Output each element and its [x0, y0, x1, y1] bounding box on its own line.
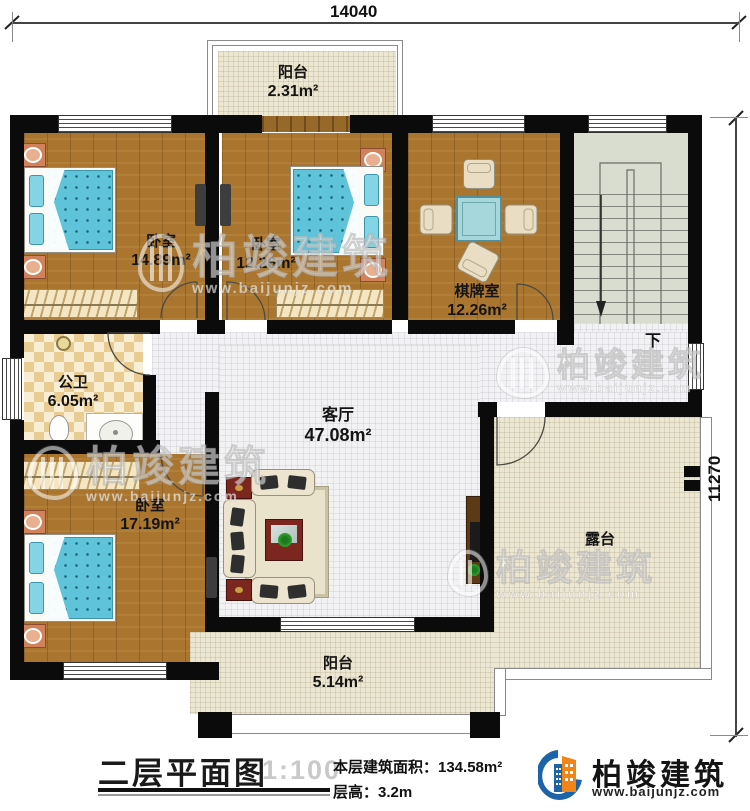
- cushion: [230, 554, 245, 573]
- living-sofa-top: [251, 469, 315, 496]
- bedroom3-tv: [206, 557, 217, 598]
- dimension-ext-left: [12, 12, 13, 42]
- dimension-right-line: [735, 118, 737, 737]
- living-side-table-bottom: [226, 579, 252, 601]
- stair-treads: [574, 183, 688, 324]
- bedroom2-nightstand-bottom: [360, 258, 386, 282]
- game-room-window-top: [432, 115, 525, 133]
- cushion: [259, 475, 278, 490]
- wall-top-4: [525, 115, 588, 133]
- cushion: [287, 475, 306, 490]
- wall-mid-1: [10, 320, 160, 334]
- living-coffee-table: [265, 519, 303, 561]
- title-underline-2: [98, 794, 330, 796]
- room-label-terrace: 露台: [510, 531, 690, 549]
- balcony-column-left: [198, 712, 232, 738]
- wall-terrace-top-2: [545, 402, 702, 417]
- wall-bedroom3-bottom-1: [10, 662, 63, 680]
- desk-monitor: [470, 522, 480, 562]
- floor-height-text: 层高：3.2m: [333, 781, 412, 802]
- terrace-railing-jog: [494, 668, 506, 716]
- toilet-bowl: [49, 415, 69, 442]
- bedroom3-wardrobe: [18, 461, 140, 490]
- gameroom-chair-top: [463, 159, 495, 189]
- balcony-top-doorway: [262, 116, 350, 132]
- dimension-top-line: [12, 22, 740, 24]
- balcony-bottom-railing: [204, 714, 496, 734]
- cushion: [230, 531, 245, 550]
- dimension-ext-top: [710, 117, 748, 118]
- room-label-bathroom: 公卫 6.05m²: [3, 374, 143, 411]
- room-label-bedroom3: 卧室 17.19m²: [60, 497, 240, 534]
- bedroom1-window-top: [58, 115, 172, 133]
- room-label-balcony-top: 阳台 2.31m²: [203, 64, 383, 101]
- bedroom1-wardrobe: [18, 289, 138, 318]
- bedroom1-tv: [195, 184, 206, 226]
- stair-landing-window-right: [688, 343, 704, 390]
- room-label-game-room: 棋牌室 12.26m²: [387, 283, 567, 320]
- living-side-table-top: [226, 477, 252, 499]
- wall-living-right: [480, 417, 494, 632]
- floor-plan: 14040 11270: [0, 0, 750, 811]
- gameroom-table: [456, 196, 502, 242]
- floor-area-text: 本层建筑面积：134.58m²: [333, 756, 502, 777]
- bedroom3-window-bottom: [63, 662, 167, 680]
- brand-website: www.baijunjz.com: [592, 784, 720, 799]
- desk-plant: [468, 564, 480, 576]
- dimension-ext-right: [739, 12, 740, 42]
- bathroom-lamp: [56, 336, 71, 351]
- wall-living-bottom-2: [415, 617, 494, 632]
- wall-mid-3: [267, 320, 392, 334]
- wall-terrace-top-1: [478, 402, 497, 417]
- pillow: [29, 175, 44, 207]
- wall-mid-2: [197, 320, 225, 334]
- wall-bedroom3-bottom-2: [167, 662, 219, 680]
- dimension-right: 11270: [705, 412, 725, 502]
- wall-left-2: [10, 420, 24, 680]
- plan-scale: 1:100: [262, 755, 341, 786]
- pillow: [29, 213, 44, 245]
- room-label-balcony-bottom: 阳台 5.14m²: [248, 655, 428, 692]
- bedroom3-bed: [24, 534, 116, 622]
- room-label-bedroom2: 卧室 12.26m²: [176, 236, 356, 273]
- plan-title: 二层平面图: [98, 748, 268, 793]
- dimension-top: 14040: [330, 2, 377, 22]
- wall-bedroom1-bedroom2: [205, 133, 219, 320]
- wall-mid-5: [557, 320, 574, 345]
- title-underline: [98, 788, 330, 792]
- pillow: [364, 216, 379, 248]
- terrace-pier-2: [684, 480, 700, 491]
- balcony-sliding-door: [280, 617, 415, 632]
- wall-top-2: [172, 115, 262, 133]
- pillow: [29, 542, 44, 574]
- room-label-living-room: 客厅 47.08m²: [248, 406, 428, 447]
- table-plant: [278, 533, 292, 547]
- terrace-pier-1: [684, 466, 700, 477]
- wall-bathroom-bedroom3: [10, 440, 160, 454]
- brand-logo-icon: [538, 746, 586, 802]
- wall-living-bottom-1: [205, 617, 280, 632]
- gameroom-chair-right: [505, 205, 538, 235]
- stairs-down-label: 下: [645, 327, 661, 351]
- vestibule-floor: [152, 332, 205, 454]
- terrace-railing-bottom: [500, 668, 712, 680]
- gameroom-chair-left: [420, 205, 453, 235]
- living-sofa-bottom: [251, 577, 315, 604]
- pillow: [364, 174, 379, 206]
- bedroom2-wardrobe: [276, 289, 384, 318]
- cushion: [287, 584, 306, 599]
- balcony-column-right: [470, 712, 500, 738]
- wall-mid-4: [408, 320, 515, 334]
- stairwell-window-top: [588, 115, 667, 133]
- wall-right-1: [688, 115, 702, 343]
- bedroom2-tv: [220, 184, 231, 226]
- pillow: [29, 582, 44, 614]
- wall-top-3: [350, 115, 432, 133]
- cushion: [259, 584, 278, 599]
- dimension-ext-bottom: [710, 735, 748, 736]
